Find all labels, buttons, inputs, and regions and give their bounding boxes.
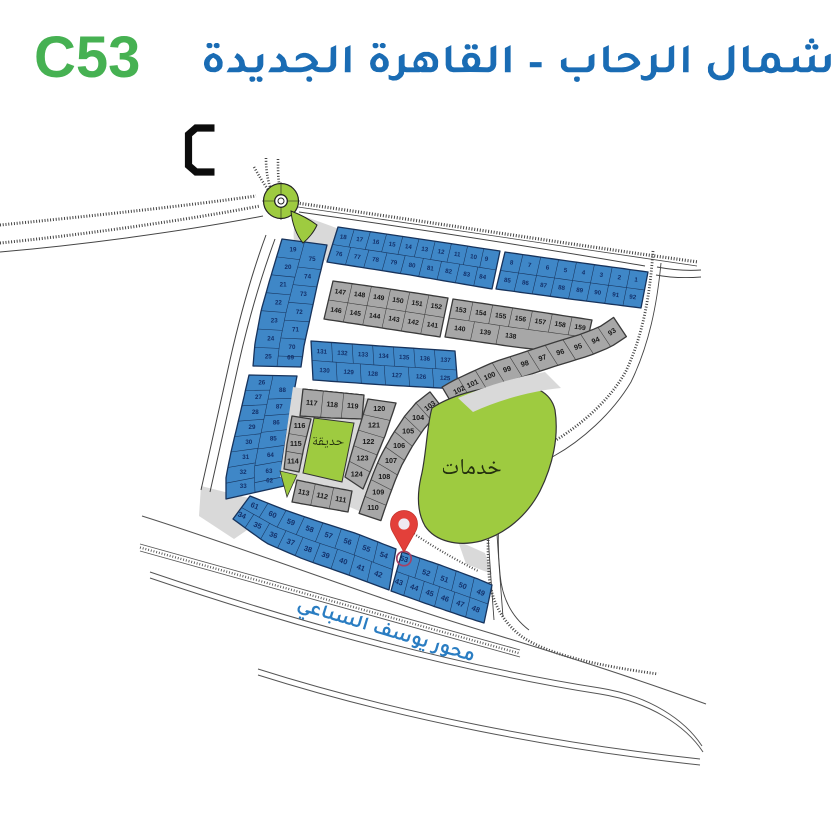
svg-text:118: 118 [326, 399, 338, 409]
svg-text:32: 32 [240, 469, 247, 476]
svg-text:129: 129 [343, 369, 354, 377]
svg-text:104: 104 [412, 413, 424, 422]
svg-text:74: 74 [304, 274, 311, 281]
svg-text:122: 122 [362, 437, 374, 446]
svg-text:27: 27 [255, 394, 262, 401]
svg-text:70: 70 [289, 344, 296, 351]
svg-text:110: 110 [367, 503, 379, 512]
svg-text:85: 85 [270, 436, 277, 443]
svg-text:24: 24 [267, 336, 274, 343]
svg-text:23: 23 [271, 317, 278, 324]
svg-text:105: 105 [402, 427, 414, 436]
svg-text:C53: C53 [34, 25, 140, 90]
svg-text:30: 30 [245, 439, 252, 446]
svg-text:28: 28 [252, 409, 259, 416]
svg-text:137: 137 [440, 356, 451, 364]
svg-text:69: 69 [287, 355, 294, 362]
svg-text:26: 26 [258, 379, 265, 386]
svg-text:33: 33 [240, 483, 247, 490]
svg-text:62: 62 [266, 478, 273, 485]
svg-text:20: 20 [285, 264, 292, 271]
svg-text:135: 135 [399, 354, 410, 362]
svg-text:108: 108 [378, 472, 390, 481]
svg-text:130: 130 [319, 367, 330, 375]
svg-text:114: 114 [287, 457, 299, 466]
svg-text:29: 29 [249, 424, 256, 431]
svg-text:124: 124 [351, 470, 363, 479]
svg-text:63: 63 [266, 468, 273, 475]
svg-text:127: 127 [391, 372, 402, 380]
svg-text:126: 126 [416, 373, 427, 381]
svg-text:25: 25 [265, 354, 272, 361]
svg-text:134: 134 [378, 353, 389, 361]
svg-text:125: 125 [440, 375, 451, 383]
svg-text:22: 22 [275, 300, 282, 307]
svg-text:31: 31 [242, 454, 249, 461]
svg-text:21: 21 [280, 282, 287, 289]
svg-text:136: 136 [419, 355, 430, 363]
svg-text:131: 131 [316, 348, 327, 356]
svg-text:72: 72 [296, 309, 303, 316]
svg-text:87: 87 [276, 403, 283, 410]
svg-text:73: 73 [300, 291, 307, 298]
svg-text:133: 133 [358, 351, 369, 359]
svg-text:120: 120 [373, 404, 385, 413]
svg-text:132: 132 [337, 350, 348, 358]
svg-text:123: 123 [357, 453, 369, 462]
svg-text:115: 115 [290, 439, 302, 448]
svg-text:121: 121 [368, 421, 380, 430]
svg-text:75: 75 [309, 256, 316, 263]
svg-text:88: 88 [279, 387, 286, 394]
svg-text:106: 106 [393, 441, 405, 450]
svg-text:107: 107 [385, 456, 397, 465]
svg-text:71: 71 [292, 326, 299, 333]
svg-text:119: 119 [347, 401, 359, 411]
svg-text:109: 109 [372, 488, 384, 497]
svg-text:117: 117 [306, 398, 318, 408]
svg-text:64: 64 [267, 452, 274, 459]
svg-text:128: 128 [367, 370, 378, 378]
svg-text:86: 86 [273, 419, 280, 426]
svg-text:111: 111 [335, 494, 348, 505]
svg-text:19: 19 [290, 246, 297, 253]
svg-text:116: 116 [294, 421, 306, 430]
